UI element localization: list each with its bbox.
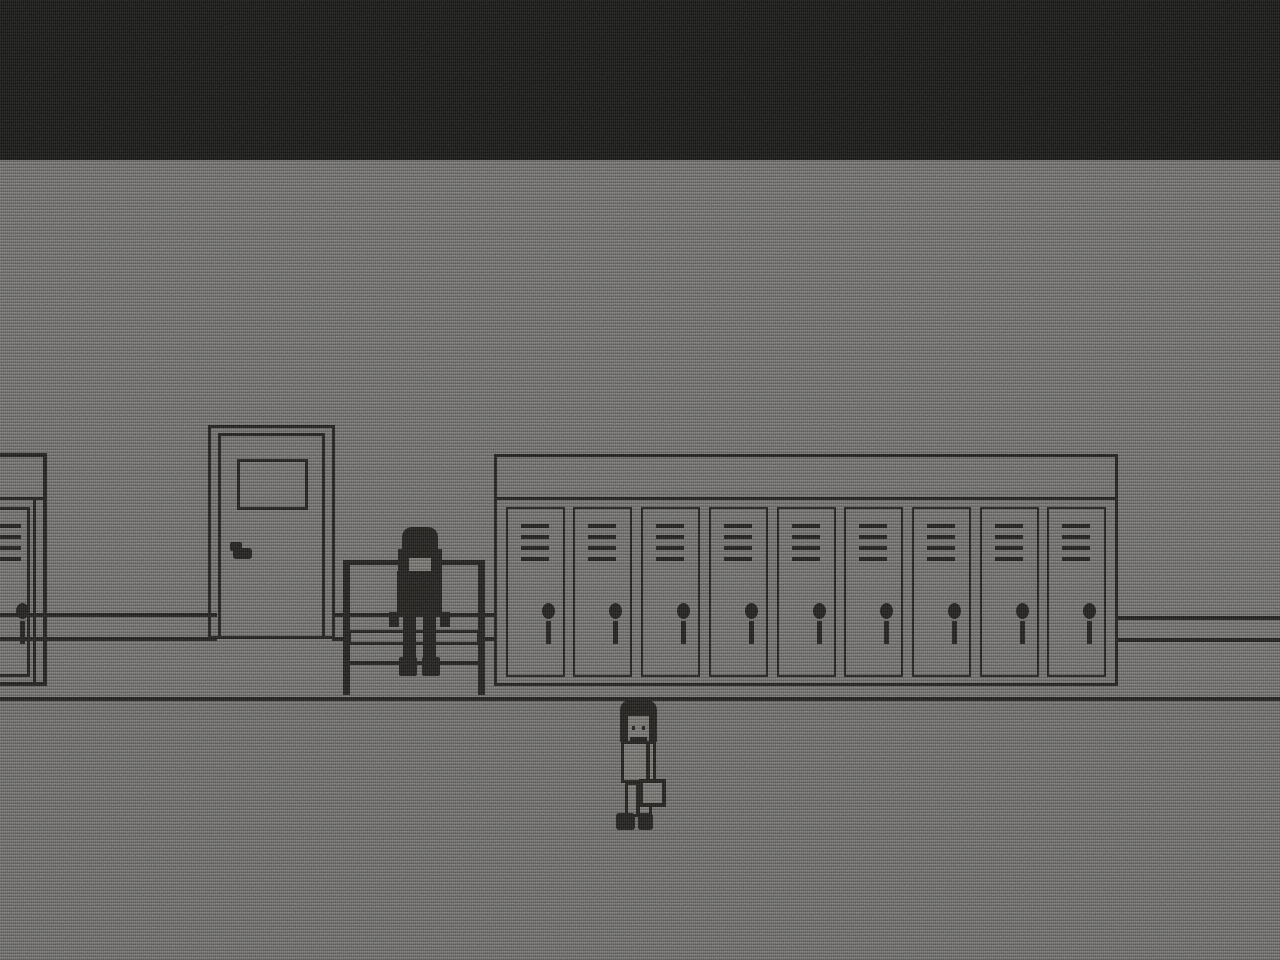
locker-handle-stem: [817, 621, 822, 644]
locker-vent-slat: [1062, 557, 1090, 561]
locker-handle-stem: [952, 621, 957, 644]
locker-vent-slat: [995, 535, 1023, 539]
locker-handle-knob: [677, 603, 690, 619]
door-window: [237, 459, 308, 510]
locker-vent-slat: [656, 557, 684, 561]
locker-vent-slat: [995, 557, 1023, 561]
shoulder-bag: [639, 779, 666, 807]
locker-handle-knob: [609, 603, 622, 619]
seated-character-leg: [423, 617, 436, 662]
locker-vent-slat: [521, 557, 549, 561]
locker-handle-knob: [1016, 603, 1029, 619]
standing-character-shoe: [638, 813, 653, 830]
locker-handle-stem: [884, 621, 889, 644]
locker-door: [912, 507, 971, 677]
locker-handle-knob: [813, 603, 826, 619]
locker-vent-slat: [0, 524, 21, 528]
locker-handle-stem: [1020, 621, 1025, 644]
standing-character-torso: [621, 741, 656, 783]
locker-vent-slat: [1062, 524, 1090, 528]
seated-character-leg: [403, 617, 416, 662]
locker-vent-slat: [995, 524, 1023, 528]
locker-handle-stem: [613, 621, 618, 644]
locker-vent-slat: [927, 524, 955, 528]
locker-vent-slat: [859, 524, 887, 528]
locker-vent-slat: [927, 535, 955, 539]
locker-vent-slat: [859, 557, 887, 561]
bench-leg: [478, 560, 485, 695]
locker-door: [709, 507, 768, 677]
locker-handle-knob: [542, 603, 555, 619]
locker-handle-stem: [20, 621, 25, 644]
bench-leg: [343, 560, 350, 695]
ceiling-void: [0, 0, 1280, 160]
locker-vent-slat: [588, 557, 616, 561]
seated-character-hand: [389, 612, 399, 627]
locker-vent-slat: [0, 546, 21, 550]
locker-door: [1047, 507, 1106, 677]
locker-door-edge: [0, 507, 30, 510]
locker-vent-slat: [521, 524, 549, 528]
locker-inner-frame: [33, 500, 36, 686]
locker-vent-slat: [1062, 546, 1090, 550]
baseboard-line: [1118, 638, 1280, 642]
seated-character-face: [409, 558, 431, 571]
locker-vent-slat: [724, 546, 752, 550]
locker-vent-slat: [588, 546, 616, 550]
baseboard-line: [1118, 616, 1280, 620]
locker-side-edge: [43, 453, 47, 686]
locker-handle-knob: [948, 603, 961, 619]
standing-character-eye: [642, 726, 645, 730]
locker-door: [573, 507, 632, 677]
locker-vent-slat: [859, 546, 887, 550]
locker-vent-slat: [724, 524, 752, 528]
locker-handle-knob: [16, 603, 29, 619]
game-screen[interactable]: [0, 0, 1280, 960]
locker-vent-slat: [588, 535, 616, 539]
seated-character-shoe: [422, 657, 440, 676]
locker-bottom-edge: [0, 682, 47, 686]
locker-door-edge: [27, 507, 30, 677]
seated-character-hand: [440, 612, 450, 627]
standing-character-hair: [620, 714, 628, 742]
locker-top-edge: [0, 453, 47, 457]
locker-vent-slat: [792, 546, 820, 550]
locker-door: [844, 507, 903, 677]
standing-character-eye: [632, 726, 635, 730]
locker-vent-slat: [927, 546, 955, 550]
locker-vent-slat: [656, 524, 684, 528]
locker-handle-stem: [546, 621, 551, 644]
locker-vent-slat: [1062, 535, 1090, 539]
locker-vent-slat: [521, 546, 549, 550]
locker-vent-slat: [995, 546, 1023, 550]
locker-handle-stem: [681, 621, 686, 644]
locker-vent-slat: [656, 546, 684, 550]
locker-door: [506, 507, 565, 677]
locker-vent-slat: [792, 557, 820, 561]
locker-handle-knob: [745, 603, 758, 619]
locker-door: [641, 507, 700, 677]
locker-header-line: [497, 497, 1115, 500]
locker-door: [980, 507, 1039, 677]
standing-character-shoe: [616, 813, 635, 830]
locker-handle-knob: [880, 603, 893, 619]
locker-handle-stem: [749, 621, 754, 644]
locker-vent-slat: [859, 535, 887, 539]
locker-vent-slat: [724, 557, 752, 561]
locker-vent-slat: [0, 535, 21, 539]
seated-character-shoe: [399, 657, 417, 676]
seated-character-torso: [397, 571, 442, 617]
locker-vent-slat: [927, 557, 955, 561]
locker-row: [494, 454, 1118, 686]
locker-handle-stem: [1087, 621, 1092, 644]
locker-vent-slat: [656, 535, 684, 539]
locker-door: [777, 507, 836, 677]
standing-character-hair: [649, 714, 657, 742]
locker-door-edge: [0, 674, 30, 677]
locker-vent-slat: [0, 557, 21, 561]
locker-vent-slat: [588, 524, 616, 528]
locker-handle-knob: [1083, 603, 1096, 619]
door-handle: [233, 548, 252, 559]
locker-vent-slat: [521, 535, 549, 539]
locker-vent-slat: [792, 524, 820, 528]
locker-vent-slat: [724, 535, 752, 539]
locker-vent-slat: [792, 535, 820, 539]
bag-strap: [646, 744, 650, 782]
locker-header-line: [0, 497, 43, 500]
